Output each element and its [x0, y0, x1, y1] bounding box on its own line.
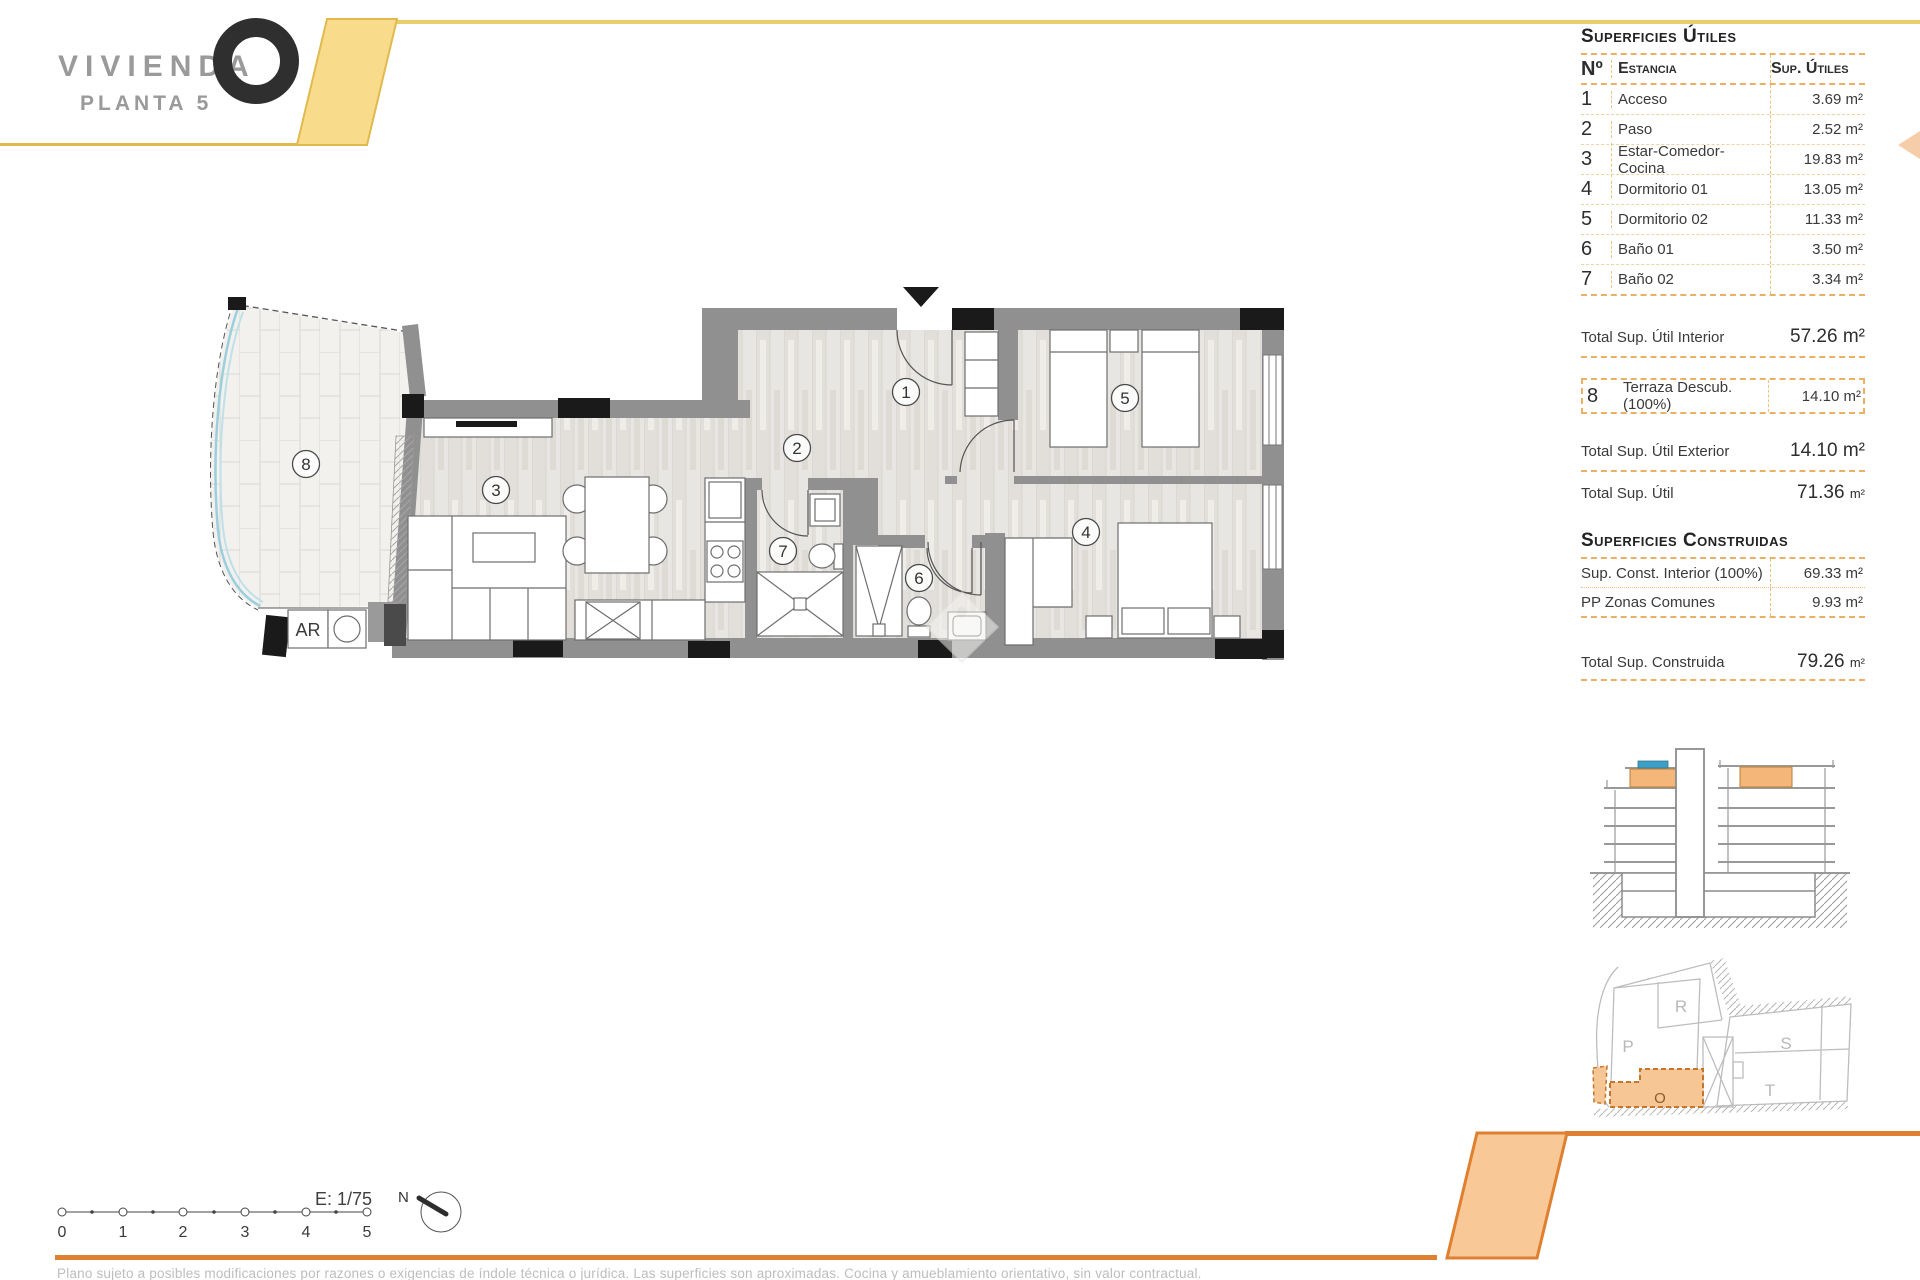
total-exterior-label: Total Sup. Útil Exterior	[1581, 443, 1729, 460]
pool-marker	[1638, 761, 1668, 768]
room-label-5: 5	[1120, 389, 1129, 408]
total-construida-label: Total Sup. Construida	[1581, 654, 1724, 671]
surfaces-utiles-table: Nº Estancia Sup. Útiles 1 Acceso 3.69 m²…	[1581, 53, 1865, 296]
total-construida-value: 79.26 m²	[1797, 651, 1865, 673]
total-util-label: Total Sup. Útil	[1581, 485, 1674, 502]
north-arrow-icon: N	[398, 1189, 461, 1232]
row-room: Dormitorio 02	[1611, 211, 1770, 228]
row-no: 7	[1581, 268, 1611, 291]
unit-label-o: O	[1654, 1090, 1666, 1107]
row-room: Baño 02	[1611, 271, 1770, 288]
row-sup: 14.10 m²	[1768, 380, 1863, 412]
scale-ticks: 0 1 2 3 4 5	[58, 1224, 372, 1241]
total-util-number: 71.36	[1797, 482, 1845, 503]
row-sup: 2.52 m²	[1770, 115, 1865, 144]
scale-bar: E: 1/75 0 1 2 3 4 5 N	[40, 1180, 480, 1255]
row-room: Estar-Comedor-Cocina	[1611, 143, 1770, 177]
surfaces-construidas-title: Superficies Construidas	[1581, 530, 1865, 552]
highlight-floor-left	[1630, 769, 1677, 787]
room-label-6: 6	[914, 569, 923, 588]
room-label-3: 3	[491, 481, 500, 500]
total-exterior-line: Total Sup. Útil Exterior 14.10 m²	[1581, 440, 1865, 472]
core-shaft	[1676, 749, 1704, 917]
unit-label-r: R	[1675, 997, 1687, 1016]
footer-line-right	[1565, 1131, 1920, 1136]
wall-dark-segment	[384, 604, 406, 646]
row-no: 5	[1581, 208, 1611, 231]
unit-label-s: S	[1780, 1034, 1791, 1053]
scale-tick: 1	[119, 1224, 128, 1241]
row-room: Acceso	[1611, 91, 1770, 108]
header-topline	[396, 20, 1920, 24]
row-value: 9.93 m²	[1770, 588, 1865, 616]
row-sup: 3.69 m²	[1770, 85, 1865, 114]
total-util-line: Total Sup. Útil 71.36 m²	[1581, 482, 1865, 504]
footer-orange-band	[1400, 1120, 1920, 1280]
table-row: 1 Acceso 3.69 m²	[1581, 85, 1865, 115]
row-no: 3	[1581, 148, 1611, 171]
table-row: 3 Estar-Comedor-Cocina 19.83 m²	[1581, 145, 1865, 175]
disclaimer-text: Plano sujeto a posibles modificaciones p…	[57, 1266, 1417, 1280]
row-no: 6	[1581, 238, 1611, 261]
table-row: 5 Dormitorio 02 11.33 m²	[1581, 205, 1865, 235]
plan-sheet: VIVIENDA PLANTA 5 Superficies Útiles Nº …	[0, 0, 1920, 1280]
area-tables: Superficies Útiles Nº Estancia Sup. Útil…	[1581, 26, 1865, 681]
entrance-arrow-icon	[903, 287, 939, 307]
room-label-1: 1	[901, 383, 910, 402]
table-row: 7 Baño 02 3.34 m²	[1581, 265, 1865, 294]
row-no: 2	[1581, 118, 1611, 141]
room-label-2: 2	[792, 439, 801, 458]
north-label: N	[398, 1189, 409, 1206]
site-key-plan: P R S T O	[1580, 955, 1880, 1140]
terrace-row: 8 Terraza Descub.(100%) 14.10 m²	[1581, 378, 1865, 414]
table-row: 2 Paso 2.52 m²	[1581, 115, 1865, 145]
header-yellow-band	[0, 0, 460, 160]
row-label: PP Zonas Comunes	[1581, 594, 1770, 611]
surfaces-construidas-table: Sup. Const. Interior (100%) 69.33 m² PP …	[1581, 557, 1865, 618]
total-interior-line: Total Sup. Útil Interior 57.26 m²	[1581, 326, 1865, 358]
total-exterior-value: 14.10 m²	[1790, 440, 1865, 462]
surfaces-utiles-title: Superficies Útiles	[1581, 26, 1865, 48]
table-row: 6 Baño 01 3.50 m²	[1581, 235, 1865, 265]
scale-tick: 4	[302, 1224, 311, 1241]
table-row: PP Zonas Comunes 9.93 m²	[1581, 587, 1865, 616]
total-construida-line: Total Sup. Construida 79.26 m²	[1581, 651, 1865, 681]
row-sup: 11.33 m²	[1770, 205, 1865, 234]
unit-o-highlight-part	[1593, 1066, 1607, 1104]
row-sup: 19.83 m²	[1770, 145, 1865, 174]
row-no: 4	[1581, 178, 1611, 201]
table-row: 4 Dormitorio 01 13.05 m²	[1581, 175, 1865, 205]
page-edge-arrow-icon	[1898, 131, 1920, 159]
unit-label-t: T	[1765, 1081, 1775, 1100]
table-row: Sup. Const. Interior (100%) 69.33 m²	[1581, 559, 1865, 587]
row-room: Paso	[1611, 121, 1770, 138]
row-sup: 3.34 m²	[1770, 265, 1865, 294]
room-label-8: 8	[301, 455, 310, 474]
basement	[1622, 873, 1815, 917]
scale-tick: 3	[241, 1224, 250, 1241]
col-sup: Sup. Útiles	[1770, 55, 1865, 83]
row-label: Sup. Const. Interior (100%)	[1581, 565, 1770, 582]
total-construida-number: 79.26	[1797, 651, 1845, 672]
col-no: Nº	[1581, 58, 1611, 81]
total-util-unit: m²	[1850, 486, 1865, 501]
scale-label: E: 1/75	[315, 1189, 372, 1209]
scale-tick: 2	[179, 1224, 188, 1241]
row-room: Dormitorio 01	[1611, 181, 1770, 198]
total-interior-value: 57.26 m²	[1790, 326, 1865, 348]
row-sup: 3.50 m²	[1770, 235, 1865, 264]
footer-line-left	[55, 1255, 1437, 1260]
row-no: 1	[1581, 88, 1611, 111]
unit-label-p: P	[1622, 1037, 1633, 1056]
col-room: Estancia	[1611, 60, 1770, 78]
scale-tick: 0	[58, 1224, 67, 1241]
row-no: 8	[1583, 385, 1617, 408]
row-room: Baño 01	[1611, 241, 1770, 258]
room-label-4: 4	[1081, 523, 1090, 542]
room-label-7: 7	[778, 542, 787, 561]
building-section-diagram	[1580, 735, 1880, 950]
row-sup: 13.05 m²	[1770, 175, 1865, 204]
total-construida-unit: m²	[1850, 655, 1865, 670]
row-value: 69.33 m²	[1770, 559, 1865, 587]
scale-tick: 5	[363, 1224, 372, 1241]
floor-plan: 8 3 2 1 7 6 5 4 AR	[200, 280, 1340, 690]
table-header-row: Nº Estancia Sup. Útiles	[1581, 53, 1865, 85]
highlight-floor-right	[1740, 767, 1792, 787]
total-util-value: 71.36 m²	[1797, 482, 1865, 504]
total-interior-label: Total Sup. Útil Interior	[1581, 329, 1724, 346]
laundry-label: AR	[295, 620, 320, 640]
row-room: Terraza Descub.(100%)	[1617, 379, 1768, 413]
